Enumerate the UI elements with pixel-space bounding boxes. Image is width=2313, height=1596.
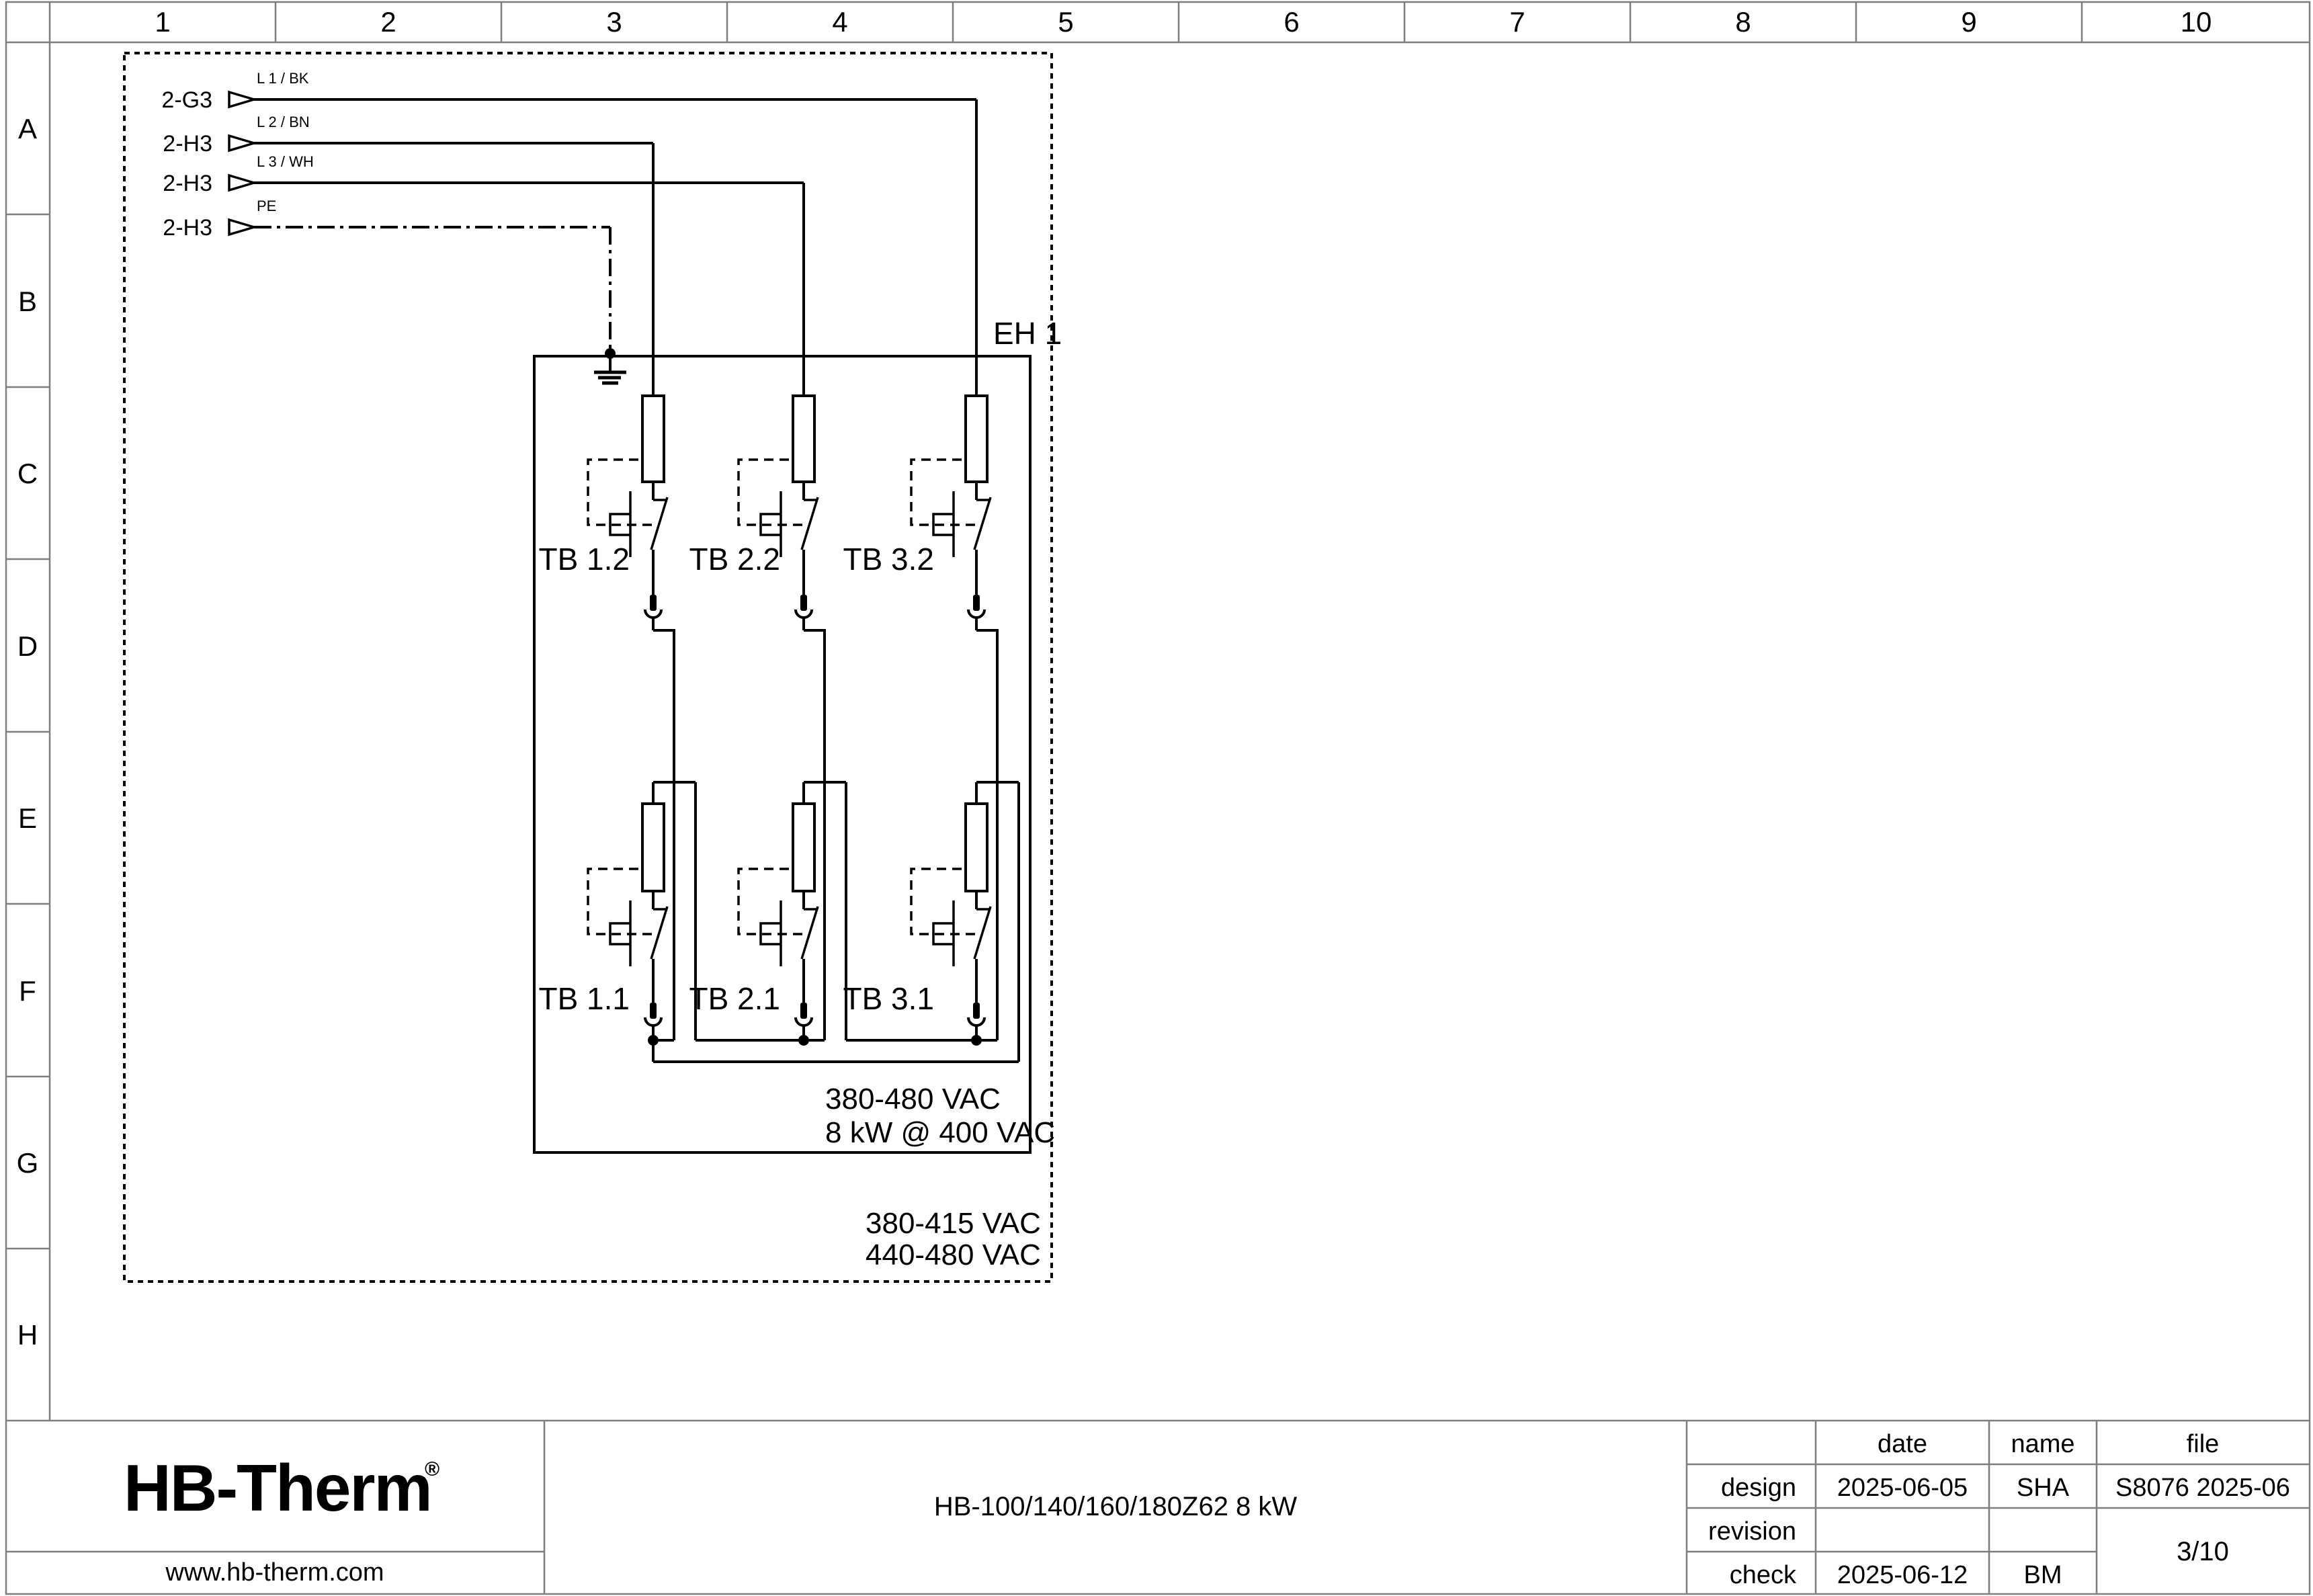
schematic-page: { "ruler": { "cols": ["1","2","3","4","5… [0, 0, 2313, 1596]
wire-label-l3: L 3 / WH [257, 153, 314, 170]
heater-branch-2-1: TB 2.1 [689, 782, 846, 1046]
tb-label: TB 3.2 [843, 542, 934, 577]
design-name: SHA [2017, 1474, 2070, 1502]
input-tag-l1: 2-G3 [161, 87, 212, 113]
heater-branch-1-2: TB 1.2 [538, 396, 674, 1040]
connector-pin-icon [650, 1003, 657, 1019]
tb-label: TB 3.1 [843, 981, 934, 1016]
tb-label: TB 1.2 [538, 542, 630, 577]
nc-contact-blade-icon [802, 907, 818, 959]
config-voltage-1: 380-415 VAC [866, 1207, 1041, 1240]
source-arrow-icon [229, 175, 254, 190]
source-arrow-icon [229, 136, 254, 151]
row-label-b: B [18, 286, 37, 317]
connector-pin-icon [973, 595, 980, 611]
heater-element-icon [642, 396, 664, 482]
col-label-5: 5 [1058, 6, 1073, 38]
company-website: www.hb-therm.com [165, 1558, 384, 1587]
input-l2: 2-H3 L 2 / BN [163, 114, 653, 396]
heater-element-icon [966, 804, 987, 891]
heater-branch-2-2: TB 2.2 [689, 396, 825, 1040]
col-label-4: 4 [832, 6, 847, 38]
nc-contact-blade-icon [802, 497, 818, 550]
col-label-10: 10 [2181, 6, 2212, 38]
connector-pin-icon [800, 595, 807, 611]
registered-trademark-icon: ® [425, 1458, 439, 1480]
star-bus [653, 1040, 1019, 1062]
nc-contact-blade-icon [651, 907, 667, 959]
drawing-title: HB-100/140/160/180Z62 8 kW [934, 1492, 1298, 1521]
col-label-2: 2 [380, 6, 396, 38]
row-label-g: G [17, 1147, 39, 1179]
heater-branch-1-1: TB 1.1 [538, 782, 696, 1046]
design-label: design [1721, 1474, 1796, 1502]
check-name: BM [2024, 1561, 2062, 1589]
heater-element-icon [793, 396, 814, 482]
source-arrow-icon [229, 220, 254, 235]
col-label-9: 9 [1961, 6, 1976, 38]
row-label-h: H [17, 1319, 38, 1351]
company-logo: HB-Therm [124, 1451, 431, 1525]
row-label-f: F [19, 975, 36, 1007]
row-label-d: D [17, 630, 38, 662]
row-label-a: A [18, 113, 37, 144]
row-label-e: E [18, 802, 37, 834]
col-label-3: 3 [606, 6, 622, 38]
header-name: name [2011, 1430, 2074, 1458]
page-number: 3/10 [2177, 1537, 2229, 1566]
design-date: 2025-06-05 [1837, 1474, 1968, 1502]
row-label-c: C [17, 458, 38, 489]
heater-branch-3-2: TB 3.2 [843, 396, 997, 1040]
design-file: S8076 2025-06 [2115, 1474, 2290, 1502]
enclosure-label: EH 1 [993, 316, 1062, 351]
tb-label: TB 2.2 [689, 542, 780, 577]
config-voltage-2: 440-480 VAC [866, 1238, 1041, 1271]
header-file: file [2187, 1430, 2220, 1458]
nc-contact-blade-icon [974, 907, 991, 959]
heater-enclosure-box [534, 356, 1030, 1152]
rating-line-1: 380-480 VAC [825, 1083, 1001, 1116]
connector-pin-icon [650, 595, 657, 611]
heater-element-icon [793, 804, 814, 891]
page-border [6, 2, 2310, 1594]
drawing-canvas: 1 2 3 4 5 6 7 8 9 10 A B C D E F G H 2-G… [0, 0, 2313, 1596]
title-block: HB-Therm ® www.hb-therm.com HB-100/140/1… [6, 1421, 2310, 1594]
revision-label: revision [1708, 1517, 1796, 1546]
heater-element-icon [642, 804, 664, 891]
col-label-7: 7 [1509, 6, 1525, 38]
check-date: 2025-06-12 [1837, 1561, 1968, 1589]
rating-line-2: 8 kW @ 400 VAC [825, 1116, 1055, 1149]
wire-label-l1: L 1 / BK [257, 70, 309, 87]
input-tag-l2: 2-H3 [163, 131, 212, 157]
nc-contact-blade-icon [651, 497, 667, 550]
col-label-6: 6 [1284, 6, 1299, 38]
col-label-1: 1 [155, 6, 170, 38]
wire-label-pe: PE [257, 198, 276, 214]
source-arrow-icon [229, 92, 254, 107]
drawing-frame: 1 2 3 4 5 6 7 8 9 10 A B C D E F G H [6, 2, 2310, 1594]
wire-label-l2: L 2 / BN [257, 114, 310, 130]
input-l3: 2-H3 L 3 / WH [163, 153, 804, 396]
schematic: 2-G3 L 1 / BK 2-H3 L 2 / BN 2-H3 L 3 / W… [124, 53, 1062, 1282]
connector-pin-icon [800, 1003, 807, 1019]
connector-pin-icon [973, 1003, 980, 1019]
heater-branch-3-1: TB 3.1 [843, 782, 1019, 1062]
ground-icon [594, 372, 626, 383]
tb-label: TB 1.1 [538, 981, 630, 1016]
check-label: check [1730, 1561, 1797, 1589]
nc-contact-blade-icon [974, 497, 991, 550]
tb-label: TB 2.1 [689, 981, 780, 1016]
input-tag-pe: 2-H3 [163, 215, 212, 241]
input-tag-l3: 2-H3 [163, 171, 212, 196]
heater-element-icon [966, 396, 987, 482]
header-date: date [1878, 1430, 1927, 1458]
col-label-8: 8 [1735, 6, 1751, 38]
